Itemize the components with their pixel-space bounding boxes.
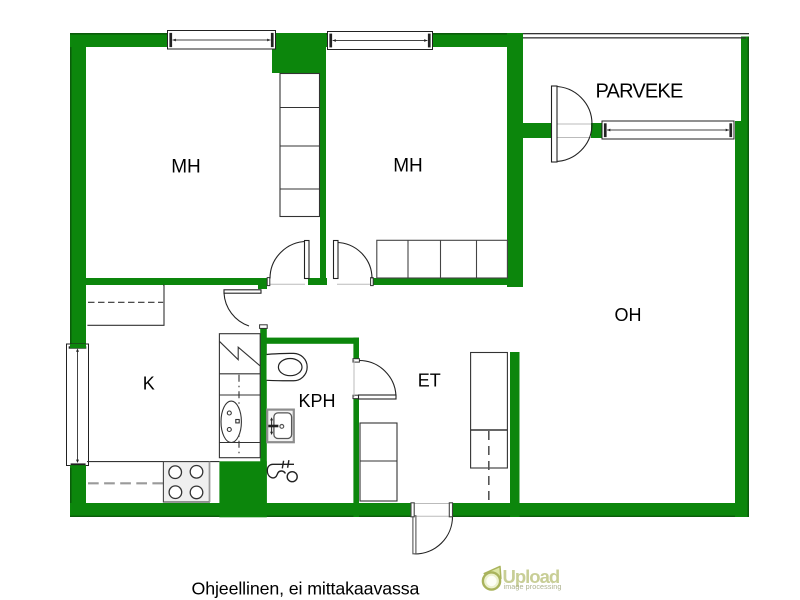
svg-text:OH: OH: [615, 305, 642, 325]
svg-text:KPH: KPH: [298, 391, 335, 411]
svg-text:MH: MH: [171, 157, 201, 178]
svg-text:K: K: [143, 374, 155, 394]
svg-text:image processing: image processing: [504, 582, 562, 591]
svg-text:Ohjeellinen, ei mittakaavassa: Ohjeellinen, ei mittakaavassa: [192, 579, 420, 599]
svg-text:PARVEKE: PARVEKE: [595, 81, 682, 103]
svg-text:ET: ET: [418, 371, 441, 391]
svg-text:MH: MH: [393, 156, 423, 177]
